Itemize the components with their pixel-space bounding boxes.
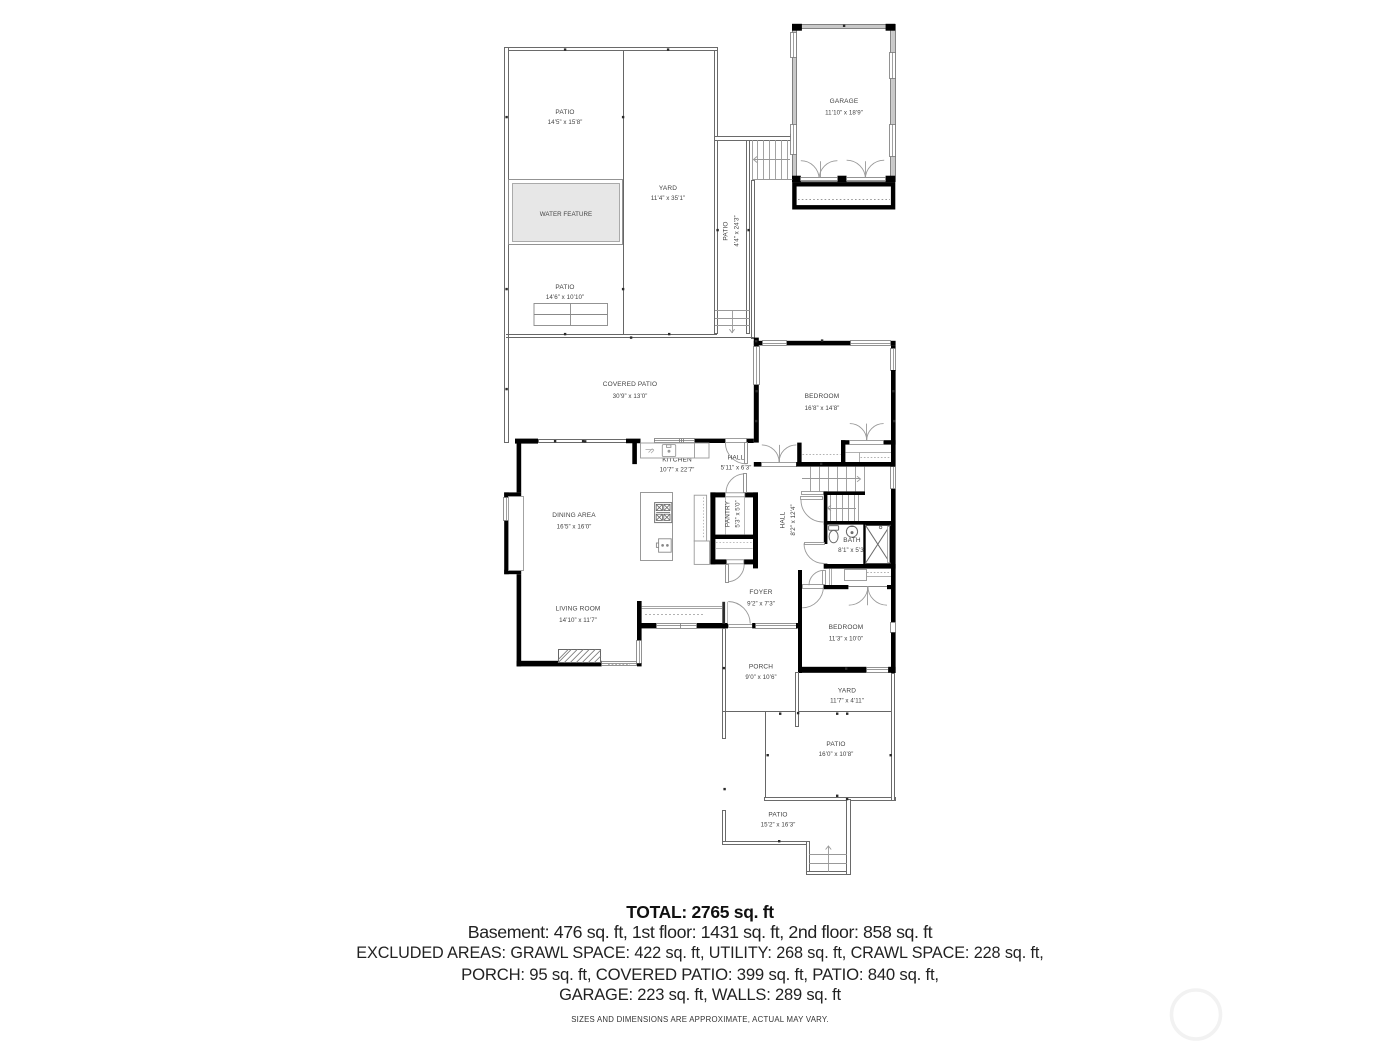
svg-text:DINING AREA: DINING AREA [552, 512, 596, 519]
svg-text:30’9” x 13’0”: 30’9” x 13’0” [613, 393, 648, 400]
svg-text:PATIO: PATIO [723, 221, 730, 240]
svg-text:15’2” x 16’3”: 15’2” x 16’3” [761, 822, 796, 829]
svg-text:14’5” x 15’8”: 14’5” x 15’8” [548, 119, 583, 126]
svg-text:10’7” x 22’7”: 10’7” x 22’7” [660, 467, 695, 474]
svg-text:16’5” x 16’0”: 16’5” x 16’0” [557, 524, 592, 531]
svg-text:PORCH: PORCH [749, 664, 773, 671]
svg-text:PATIO: PATIO [555, 109, 574, 116]
svg-text:PATIO: PATIO [555, 284, 574, 291]
svg-text:PATIO: PATIO [826, 741, 845, 748]
svg-text:14’10” x 11’7”: 14’10” x 11’7” [559, 617, 597, 624]
svg-text:BEDROOM: BEDROOM [805, 393, 840, 400]
svg-text:BATH: BATH [843, 537, 861, 544]
svg-text:8’1” x 5’3”: 8’1” x 5’3” [838, 547, 866, 554]
svg-text:WATER FEATURE: WATER FEATURE [540, 211, 592, 218]
svg-text:FOYER: FOYER [749, 589, 772, 596]
svg-text:16’0” x 10’8”: 16’0” x 10’8” [819, 751, 854, 758]
svg-text:COVERED PATIO: COVERED PATIO [603, 381, 657, 388]
svg-text:8’2” x 12’4”: 8’2” x 12’4” [790, 504, 797, 535]
svg-text:5’3” x 5’0”: 5’3” x 5’0” [735, 500, 742, 527]
svg-text:16’8” x 14’8”: 16’8” x 14’8” [805, 405, 840, 412]
svg-text:9’0” x 10’6”: 9’0” x 10’6” [745, 674, 776, 681]
svg-text:14’6” x 10’10”: 14’6” x 10’10” [546, 294, 584, 301]
svg-text:YARD: YARD [838, 688, 856, 695]
svg-text:11’7” x 4’11”: 11’7” x 4’11” [830, 698, 864, 705]
svg-text:9’2” x 7’3”: 9’2” x 7’3” [747, 601, 775, 608]
svg-text:11’3” x 10’0”: 11’3” x 10’0” [829, 636, 863, 643]
svg-text:11’10” x 18’9”: 11’10” x 18’9” [825, 110, 863, 117]
svg-text:5’11” x 6’3”: 5’11” x 6’3” [721, 465, 752, 472]
svg-text:HALL: HALL [780, 511, 787, 528]
svg-text:BEDROOM: BEDROOM [829, 624, 864, 631]
svg-text:PANTRY: PANTRY [725, 500, 732, 527]
svg-text:YARD: YARD [659, 185, 677, 192]
svg-text:HALL: HALL [728, 455, 745, 462]
svg-text:LIVING ROOM: LIVING ROOM [556, 606, 601, 613]
svg-text:GARAGE: GARAGE [830, 98, 859, 105]
svg-text:11’4” x 35’1”: 11’4” x 35’1” [651, 195, 685, 202]
svg-text:4’4” x 24’3”: 4’4” x 24’3” [734, 215, 741, 246]
svg-text:PATIO: PATIO [768, 812, 787, 819]
